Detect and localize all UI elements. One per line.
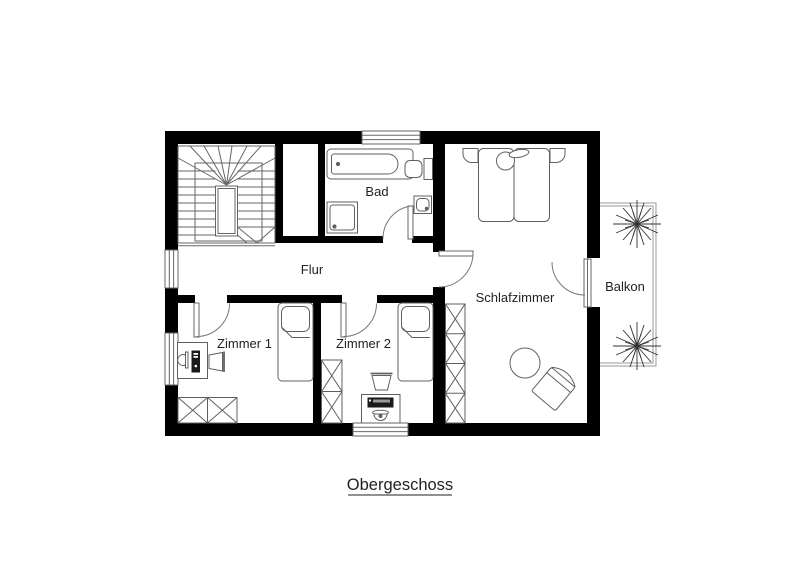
- door-zimmer1-icon: [194, 303, 230, 337]
- wardrobe-icon: [178, 398, 237, 424]
- bathtub-icon: [327, 149, 413, 179]
- sink-icon: [414, 196, 432, 214]
- plant-icon: [613, 200, 661, 248]
- double-bed-icon: [479, 148, 550, 221]
- window-flur-icon: [165, 250, 178, 288]
- wardrobe-icon: [446, 304, 466, 423]
- window-zimmer1-icon: [165, 333, 178, 385]
- nightstand-icon: [550, 149, 565, 163]
- label-zimmer-2: Zimmer 2: [336, 336, 391, 351]
- window-zimmer2-icon: [353, 423, 408, 436]
- wardrobe-icon: [322, 360, 343, 423]
- label-balkon: Balkon: [605, 279, 645, 294]
- staircase-icon: [178, 146, 275, 246]
- door-bad-icon: [383, 206, 413, 239]
- label-schlafzimmer: Schlafzimmer: [476, 290, 555, 305]
- floor-plan-drawing: Flur Bad Schlafzimmer Zimmer 1 Zimmer 2 …: [0, 0, 800, 563]
- floor-plan-page: Flur Bad Schlafzimmer Zimmer 1 Zimmer 2 …: [0, 0, 800, 563]
- window-bad-icon: [362, 131, 420, 144]
- single-bed-icon: [398, 303, 433, 381]
- toilet-icon: [405, 159, 433, 180]
- door-schlafzimmer-icon: [439, 251, 473, 287]
- pc-tower-icon: [192, 351, 201, 373]
- laptop-icon: [368, 398, 394, 408]
- plan-title: Obergeschoss: [347, 476, 453, 494]
- desk-chair-icon: [209, 352, 224, 373]
- door-zimmer2-icon: [341, 303, 377, 337]
- door-balkon-icon: [552, 259, 591, 307]
- desk-chair-icon: [371, 374, 393, 391]
- single-bed-icon: [278, 303, 313, 381]
- shower-icon: [327, 202, 358, 233]
- label-zimmer-1: Zimmer 1: [217, 336, 272, 351]
- round-table-icon: [510, 348, 540, 378]
- label-flur: Flur: [301, 262, 324, 277]
- label-bad: Bad: [365, 184, 388, 199]
- nightstand-icon: [463, 149, 478, 163]
